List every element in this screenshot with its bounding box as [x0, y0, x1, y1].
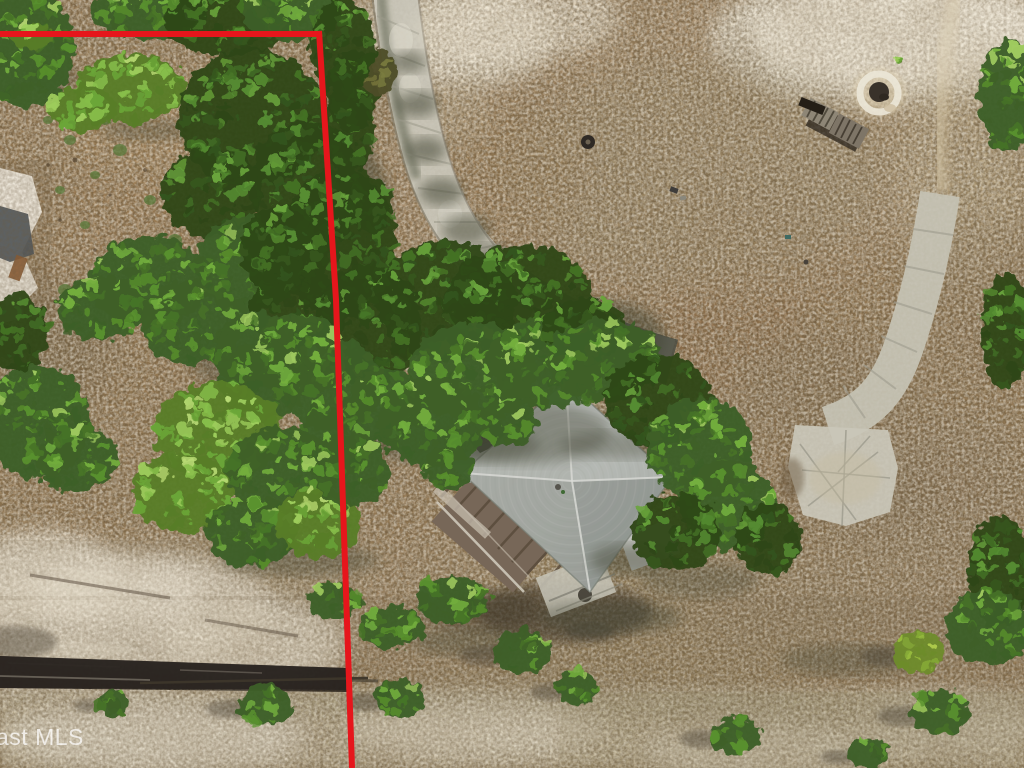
svg-text:ast MLS: ast MLS — [0, 724, 84, 750]
